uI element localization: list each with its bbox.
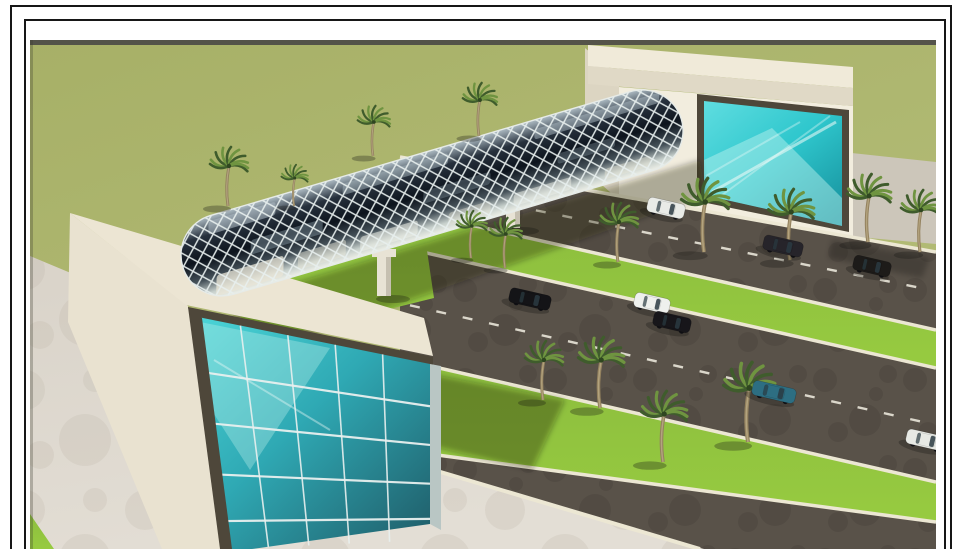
pier-shadow [376, 295, 410, 303]
render-top-edge [30, 40, 936, 45]
palm-shadow [203, 206, 231, 213]
palm-shadow [673, 251, 708, 260]
palm-shadow [633, 461, 667, 469]
palm-shadow [457, 136, 482, 142]
palm-crown-center [703, 199, 709, 205]
palm-shadow [352, 156, 376, 162]
document-page [0, 0, 960, 549]
palm-shadow [451, 258, 473, 264]
glass-corner-mullion [430, 364, 441, 530]
palm-crown-center [478, 98, 482, 102]
palm-crown-center [746, 385, 752, 391]
palm-crown-center [470, 224, 474, 228]
palm-crown-center [227, 164, 231, 168]
palm-crown-center [617, 220, 621, 224]
palm-shadow [570, 407, 604, 415]
palm-crown-center [293, 176, 296, 179]
palm-crown-center [789, 209, 794, 214]
pier-column-shade [386, 256, 391, 296]
render-left-edge [30, 40, 33, 549]
palm-crown-center [372, 120, 376, 124]
palm-crown-center [662, 411, 667, 416]
palm-crown-center [919, 208, 924, 213]
palm-crown-center [599, 357, 604, 362]
palm-shadow [714, 441, 752, 450]
render-scene [30, 40, 936, 549]
palm-crown-center [504, 232, 508, 236]
palm-shadow [839, 241, 871, 249]
palm-shadow [277, 206, 297, 211]
palm-crown-center [867, 193, 872, 198]
palm-shadow [593, 262, 621, 269]
palm-shadow [894, 251, 923, 258]
palm-shadow [518, 400, 546, 407]
architectural-rendering-canvas [30, 40, 936, 549]
palm-crown-center [542, 358, 546, 362]
palm-shadow [484, 268, 508, 274]
palm-shadow [760, 259, 794, 267]
